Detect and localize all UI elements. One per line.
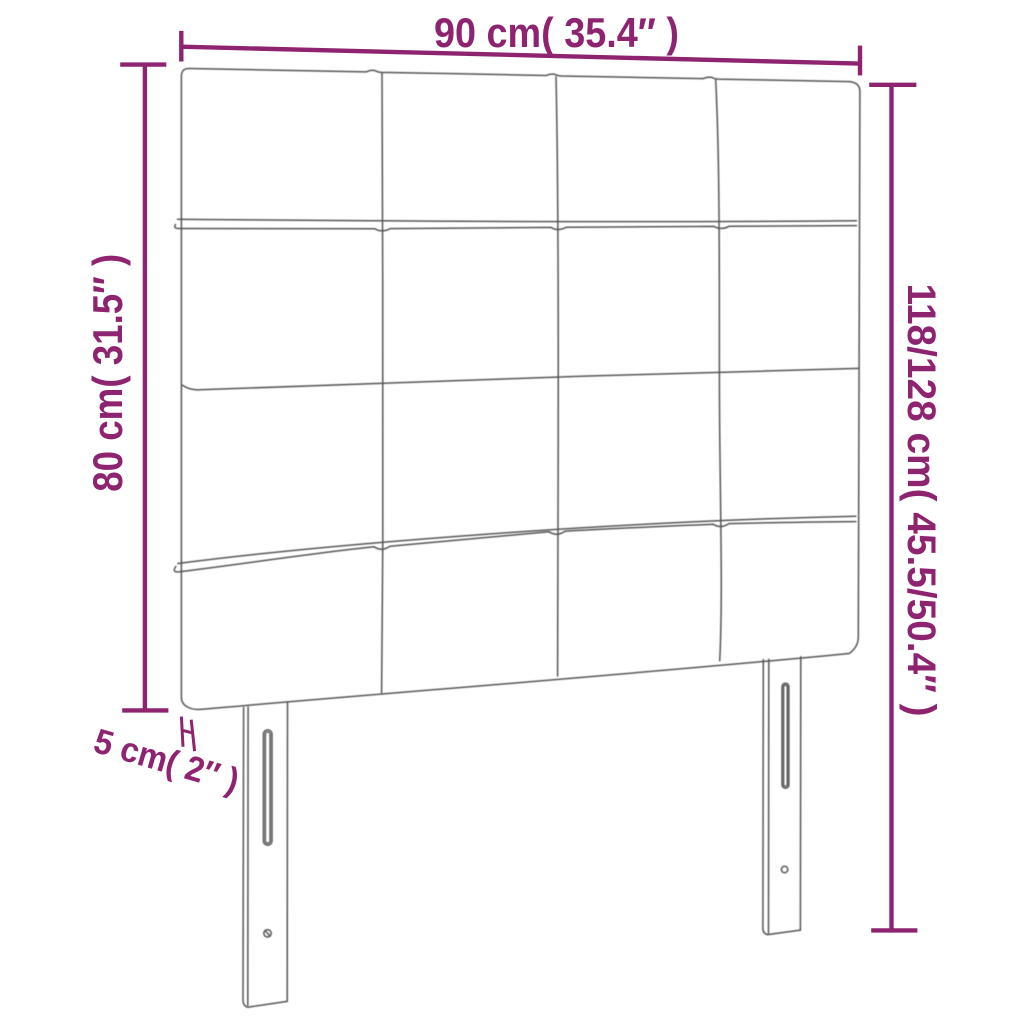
svg-text:118/128 cm( 45.5/50.4″ ): 118/128 cm( 45.5/50.4″ ) xyxy=(899,284,943,717)
svg-text:80 cm( 31.5″ ): 80 cm( 31.5″ ) xyxy=(84,254,131,492)
svg-text:90 cm( 35.4″ ): 90 cm( 35.4″ ) xyxy=(434,9,679,56)
